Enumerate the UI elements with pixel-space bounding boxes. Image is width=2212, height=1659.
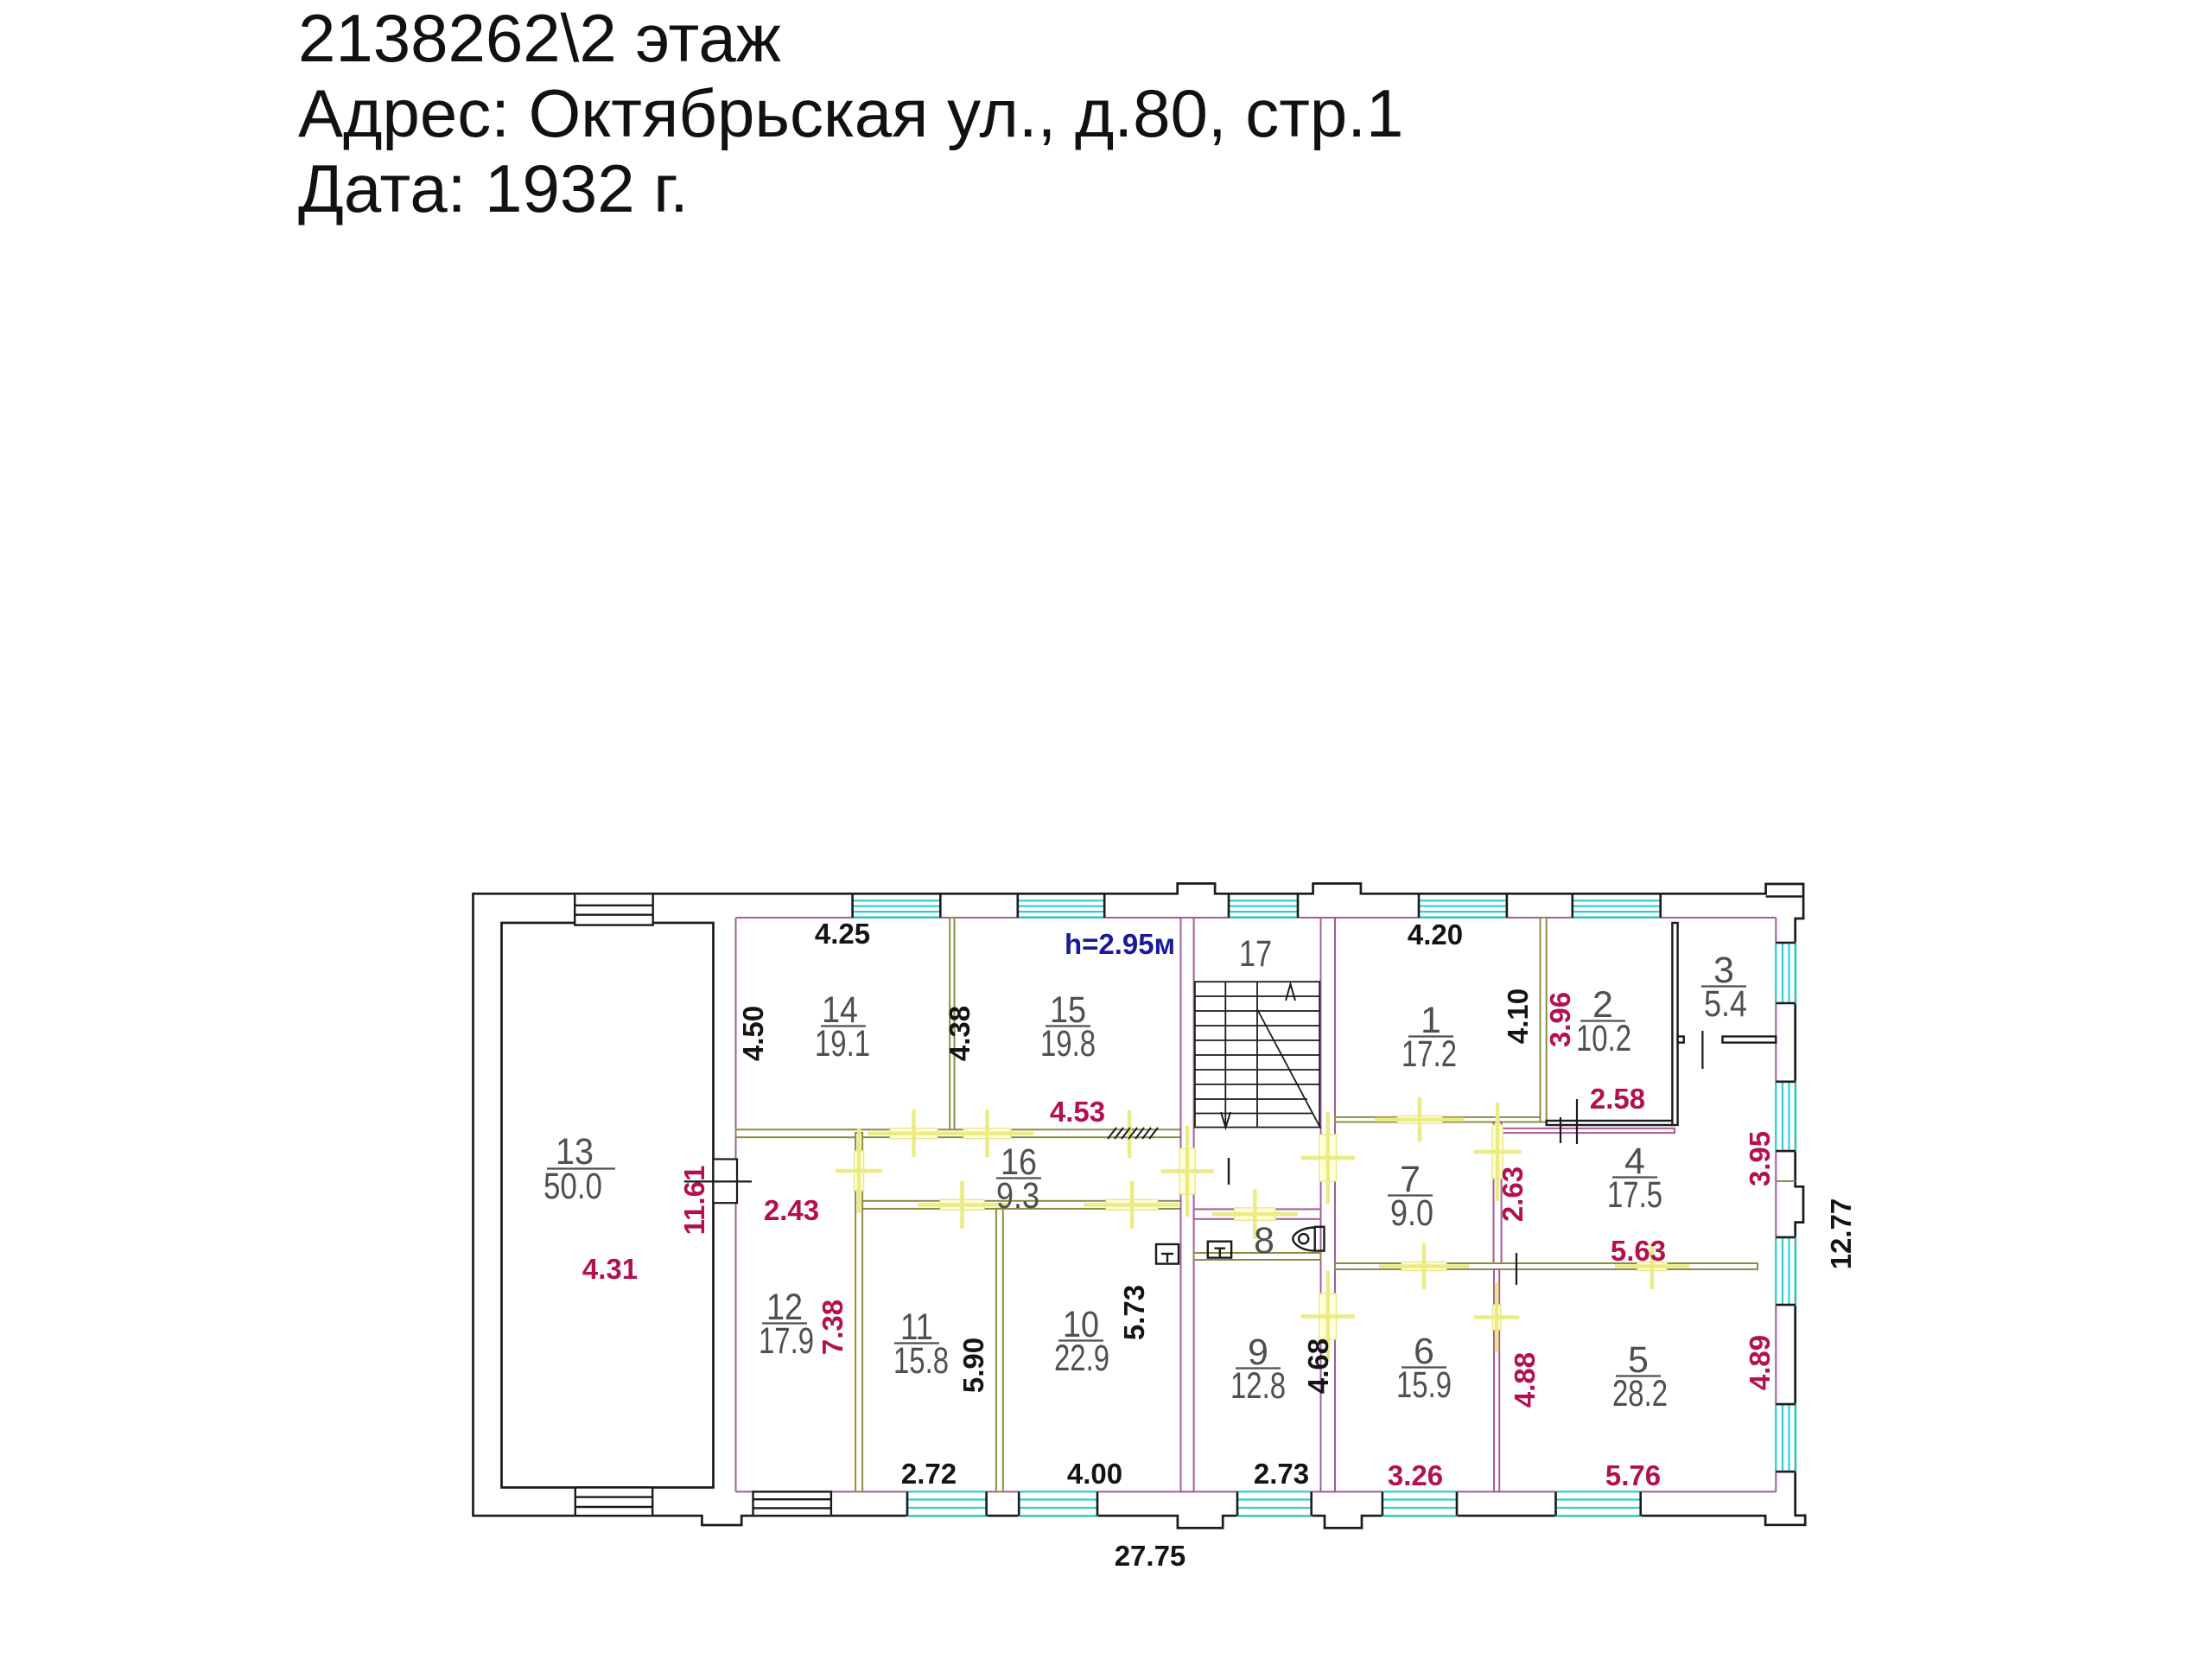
svg-text:17: 17 xyxy=(1239,933,1272,975)
svg-text:3.95: 3.95 xyxy=(1744,1131,1776,1186)
svg-text:2138262\2 этаж: 2138262\2 этаж xyxy=(298,0,781,76)
svg-text:9.0: 9.0 xyxy=(1390,1192,1433,1234)
svg-text:17.5: 17.5 xyxy=(1607,1174,1662,1216)
svg-text:Адрес: Октябрьская ул., д.80,: Адрес: Октябрьская ул., д.80, стр.1 xyxy=(298,75,1403,151)
svg-text:19.8: 19.8 xyxy=(1040,1023,1096,1065)
svg-text:17.9: 17.9 xyxy=(759,1320,814,1362)
svg-text:4.53: 4.53 xyxy=(1050,1096,1105,1128)
svg-text:4.10: 4.10 xyxy=(1502,988,1534,1044)
svg-text:4.50: 4.50 xyxy=(737,1006,769,1061)
svg-text:4.00: 4.00 xyxy=(1067,1458,1122,1490)
svg-text:5.73: 5.73 xyxy=(1118,1285,1150,1340)
svg-text:2.72: 2.72 xyxy=(901,1458,957,1490)
svg-text:9.3: 9.3 xyxy=(996,1175,1039,1217)
svg-text:15.9: 15.9 xyxy=(1396,1364,1452,1406)
svg-text:2.63: 2.63 xyxy=(1497,1166,1529,1222)
svg-text:12.8: 12.8 xyxy=(1230,1365,1286,1407)
svg-text:28.2: 28.2 xyxy=(1612,1373,1668,1414)
svg-text:10.2: 10.2 xyxy=(1576,1018,1631,1059)
svg-text:Дата: 1932 г.: Дата: 1932 г. xyxy=(298,150,689,226)
svg-text:11.61: 11.61 xyxy=(678,1166,710,1236)
svg-text:12.77: 12.77 xyxy=(1825,1198,1857,1270)
svg-text:5.63: 5.63 xyxy=(1611,1235,1666,1267)
svg-text:4.88: 4.88 xyxy=(1509,1352,1541,1408)
svg-text:4.38: 4.38 xyxy=(944,1006,976,1061)
svg-text:4.68: 4.68 xyxy=(1302,1338,1334,1394)
svg-text:3.96: 3.96 xyxy=(1544,992,1576,1047)
svg-text:8: 8 xyxy=(1254,1220,1274,1262)
svg-text:2.43: 2.43 xyxy=(764,1194,819,1226)
svg-text:5.76: 5.76 xyxy=(1605,1459,1661,1491)
svg-text:h=2.95м: h=2.95м xyxy=(1065,928,1175,960)
svg-text:4.89: 4.89 xyxy=(1744,1335,1776,1390)
svg-text:3.26: 3.26 xyxy=(1388,1459,1443,1491)
svg-text:17.2: 17.2 xyxy=(1402,1033,1457,1075)
svg-text:4.31: 4.31 xyxy=(582,1253,638,1285)
svg-text:50.0: 50.0 xyxy=(543,1166,602,1207)
svg-text:15.8: 15.8 xyxy=(893,1340,949,1382)
svg-text:19.1: 19.1 xyxy=(815,1023,870,1065)
svg-text:4.20: 4.20 xyxy=(1408,918,1463,950)
svg-text:2.73: 2.73 xyxy=(1254,1458,1309,1490)
svg-text:5.90: 5.90 xyxy=(957,1338,989,1393)
svg-text:2.58: 2.58 xyxy=(1590,1083,1645,1115)
svg-text:5.4: 5.4 xyxy=(1704,983,1747,1025)
svg-text:22.9: 22.9 xyxy=(1054,1338,1109,1379)
svg-text:4.25: 4.25 xyxy=(815,918,870,950)
svg-text:27.75: 27.75 xyxy=(1115,1540,1186,1572)
svg-text:7.38: 7.38 xyxy=(817,1300,849,1355)
